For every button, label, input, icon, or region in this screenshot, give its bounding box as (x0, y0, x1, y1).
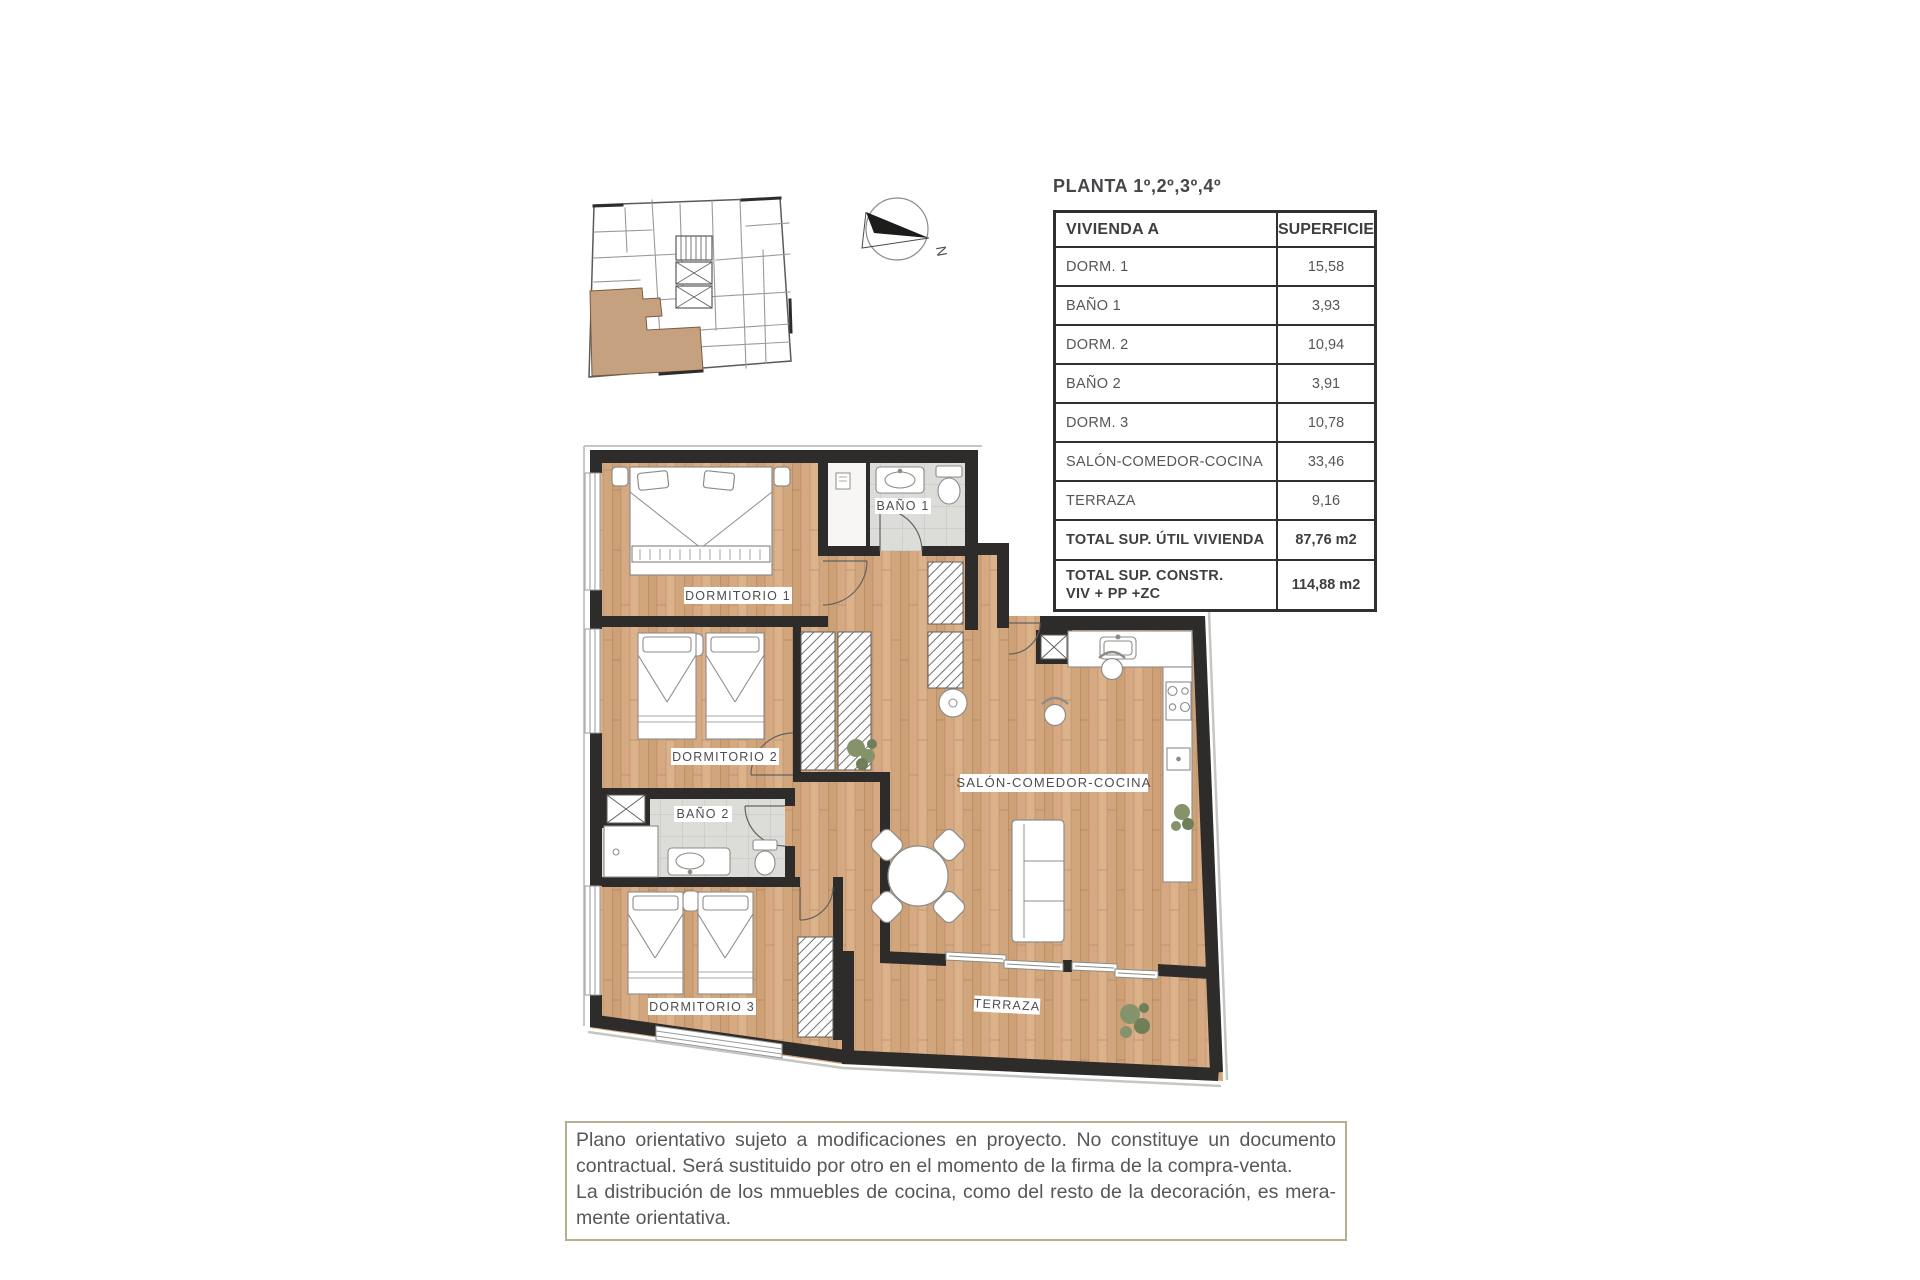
table-header-vivienda: VIVIENDA A (1056, 213, 1276, 246)
disclaimer-box: Plano orientativo sujeto a modificacione… (565, 1121, 1347, 1241)
label-salon: SALÓN-COMEDOR-COCINA (956, 774, 1151, 792)
label-terraza: TERRAZA (973, 995, 1040, 1014)
table-row: DORM. 1 15,58 (1056, 246, 1374, 285)
room-area: 3,91 (1276, 365, 1374, 402)
page-title: PLANTA 1º,2º,3º,4º (1053, 176, 1221, 197)
area-table: VIVIENDA A SUPERFICIE DORM. 1 15,58 BAÑO… (1053, 210, 1377, 612)
svg-text:DORMITORIO 3: DORMITORIO 3 (649, 1000, 755, 1014)
svg-text:SALÓN-COMEDOR-COCINA: SALÓN-COMEDOR-COCINA (956, 775, 1151, 790)
table-row: DORM. 2 10,94 (1056, 324, 1374, 363)
key-plan-core (676, 236, 712, 308)
label-dormitorio1: DORMITORIO 1 (684, 587, 792, 604)
table-row: BAÑO 2 3,91 (1056, 363, 1374, 402)
total-label: TOTAL SUP. ÚTIL VIVIENDA (1056, 521, 1276, 559)
table-row: TERRAZA 9,16 (1056, 480, 1374, 519)
disclaimer-line: contractual. Será sustituido por otro en… (576, 1153, 1336, 1179)
room-name: SALÓN-COMEDOR-COCINA (1056, 443, 1276, 480)
room-name: BAÑO 2 (1056, 365, 1276, 402)
room-name: DORM. 3 (1056, 404, 1276, 441)
table-row: DORM. 3 10,78 (1056, 402, 1374, 441)
room-area: 33,46 (1276, 443, 1374, 480)
table-row: BAÑO 1 3,93 (1056, 285, 1374, 324)
svg-text:BAÑO 1: BAÑO 1 (876, 499, 929, 513)
total-label: TOTAL SUP. CONSTR. VIV + PP +ZC (1056, 561, 1276, 609)
disclaimer-line: Plano orientativo sujeto a modificacione… (576, 1127, 1336, 1153)
bed-double-icon (612, 467, 790, 575)
compass-label: N (933, 245, 951, 258)
table-header-row: VIVIENDA A SUPERFICIE (1056, 213, 1374, 246)
sofa-icon (1012, 820, 1064, 942)
svg-text:DORMITORIO 2: DORMITORIO 2 (672, 750, 778, 764)
room-area: 3,93 (1276, 287, 1374, 324)
room-area: 9,16 (1276, 482, 1374, 519)
table-total-row: TOTAL SUP. ÚTIL VIVIENDA 87,76 m2 (1056, 519, 1374, 559)
key-plan (589, 198, 791, 377)
north-compass: N (862, 198, 951, 260)
disclaimer-line: La distribución de los mmuebles de cocin… (576, 1179, 1336, 1205)
room-name: TERRAZA (1056, 482, 1276, 519)
table-total-row: TOTAL SUP. CONSTR. VIV + PP +ZC 114,88 m… (1056, 559, 1374, 609)
disclaimer-line: mente orientativa. (576, 1205, 1336, 1231)
label-bano2: BAÑO 2 (674, 806, 732, 822)
room-name: DORM. 1 (1056, 248, 1276, 285)
room-area: 10,78 (1276, 404, 1374, 441)
plan-canvas: N (0, 0, 1920, 1280)
svg-text:BAÑO 2: BAÑO 2 (676, 807, 729, 821)
room-area: 15,58 (1276, 248, 1374, 285)
table-header-superficie: SUPERFICIE (1276, 213, 1374, 246)
room-name: DORM. 2 (1056, 326, 1276, 363)
table-row: SALÓN-COMEDOR-COCINA 33,46 (1056, 441, 1374, 480)
boiler-icon (939, 689, 967, 717)
total-value: 87,76 m2 (1276, 521, 1374, 559)
label-dormitorio2: DORMITORIO 2 (671, 748, 779, 765)
room-area: 10,94 (1276, 326, 1374, 363)
label-bano1: BAÑO 1 (875, 498, 931, 514)
total-value: 114,88 m2 (1276, 561, 1374, 609)
label-dormitorio3: DORMITORIO 3 (648, 998, 756, 1015)
north-arrow-icon (866, 212, 929, 238)
room-name: BAÑO 1 (1056, 287, 1276, 324)
svg-text:DORMITORIO 1: DORMITORIO 1 (685, 589, 791, 603)
